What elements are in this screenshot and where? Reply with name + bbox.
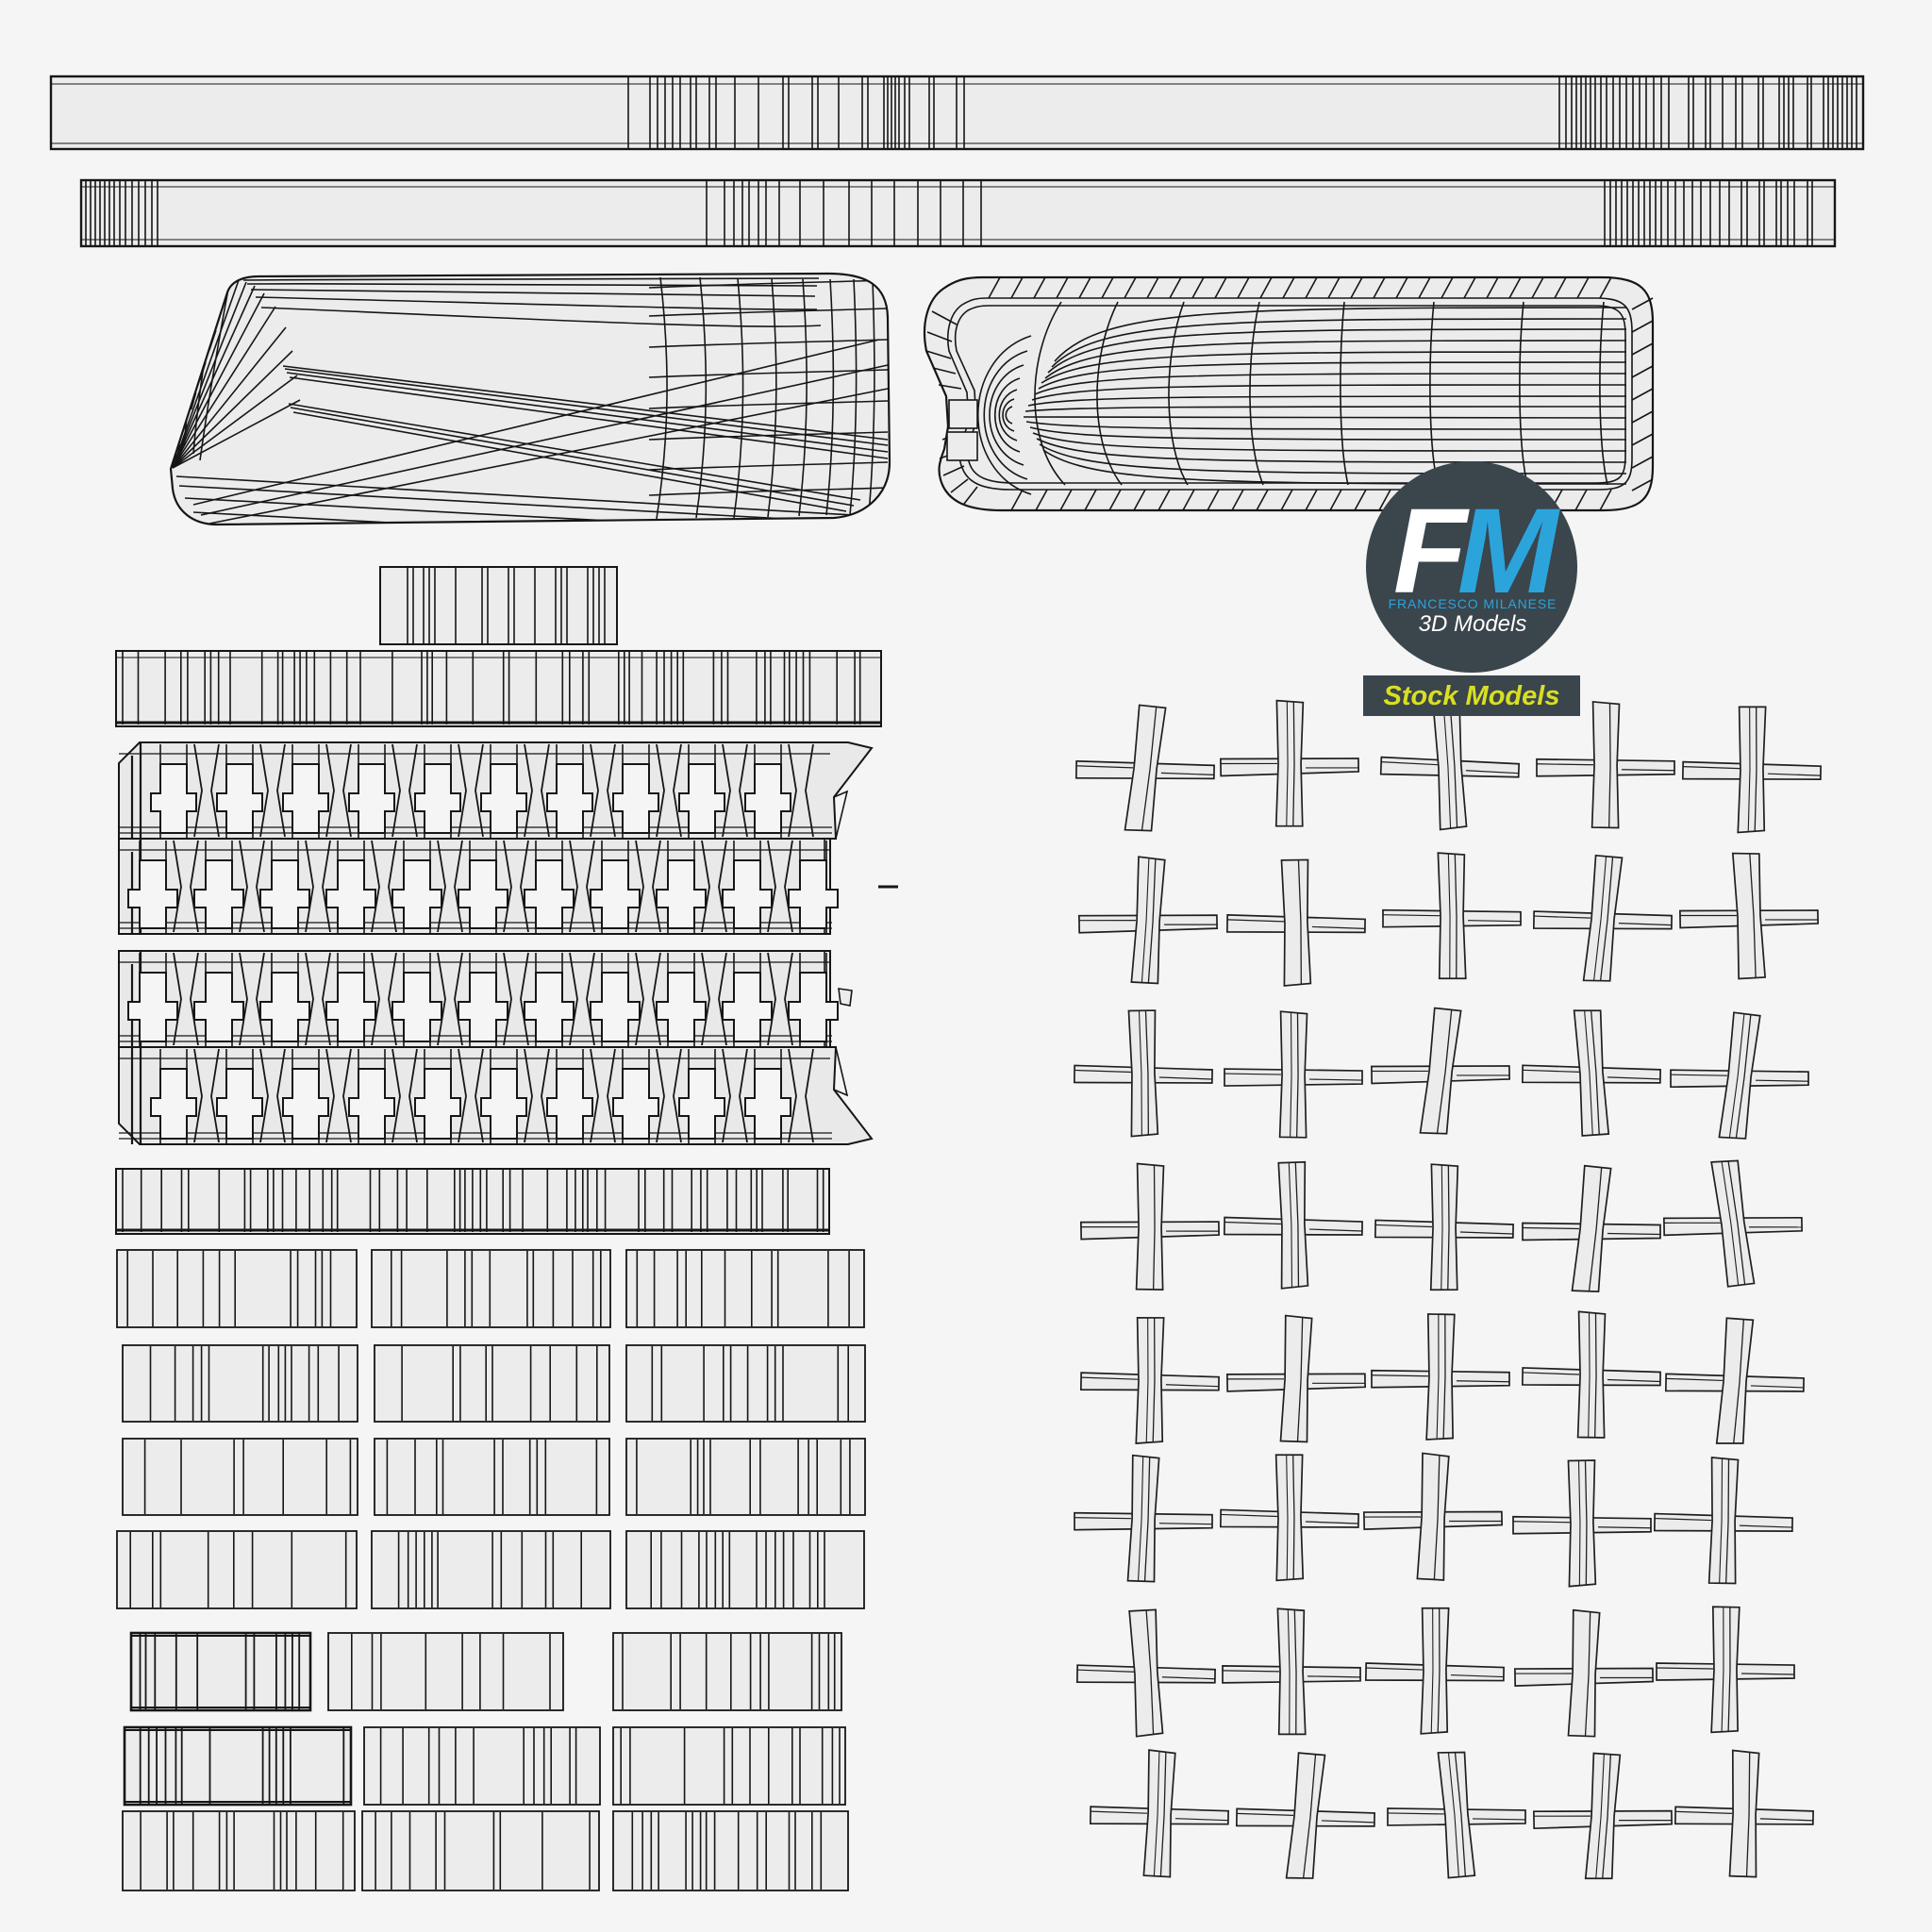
svg-text:Stock Models: Stock Models — [1384, 681, 1560, 711]
svg-text:3D Models: 3D Models — [1419, 611, 1527, 637]
svg-text:FRANCESCO MILANESE: FRANCESCO MILANESE — [1389, 596, 1557, 611]
